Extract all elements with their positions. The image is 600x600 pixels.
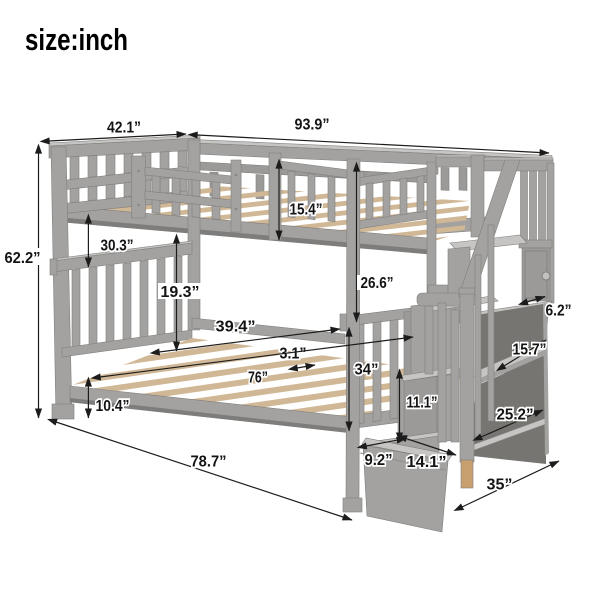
svg-text:15.7”: 15.7” [513, 342, 547, 359]
svg-text:35”: 35” [487, 477, 513, 494]
svg-text:26.6”: 26.6” [361, 275, 394, 292]
svg-text:19.3”: 19.3” [161, 284, 200, 301]
svg-text:6.2”: 6.2” [546, 303, 572, 320]
svg-text:78.7”: 78.7” [191, 454, 227, 471]
svg-text:15.4”: 15.4” [290, 202, 323, 219]
svg-text:size:inch: size:inch [25, 22, 128, 57]
svg-text:93.9”: 93.9” [295, 117, 330, 134]
svg-text:62.2”: 62.2” [5, 250, 41, 267]
svg-text:11.1”: 11.1” [407, 395, 438, 412]
svg-text:14.1”: 14.1” [407, 454, 447, 471]
svg-text:10.4”: 10.4” [96, 398, 130, 415]
svg-text:76”: 76” [248, 370, 268, 387]
svg-text:25.2”: 25.2” [497, 407, 534, 424]
svg-text:34”: 34” [355, 362, 379, 379]
svg-text:39.4”: 39.4” [216, 319, 256, 336]
svg-text:9.2”: 9.2” [365, 452, 393, 469]
svg-text:42.1”: 42.1” [107, 120, 141, 137]
svg-text:30.3”: 30.3” [101, 238, 134, 255]
